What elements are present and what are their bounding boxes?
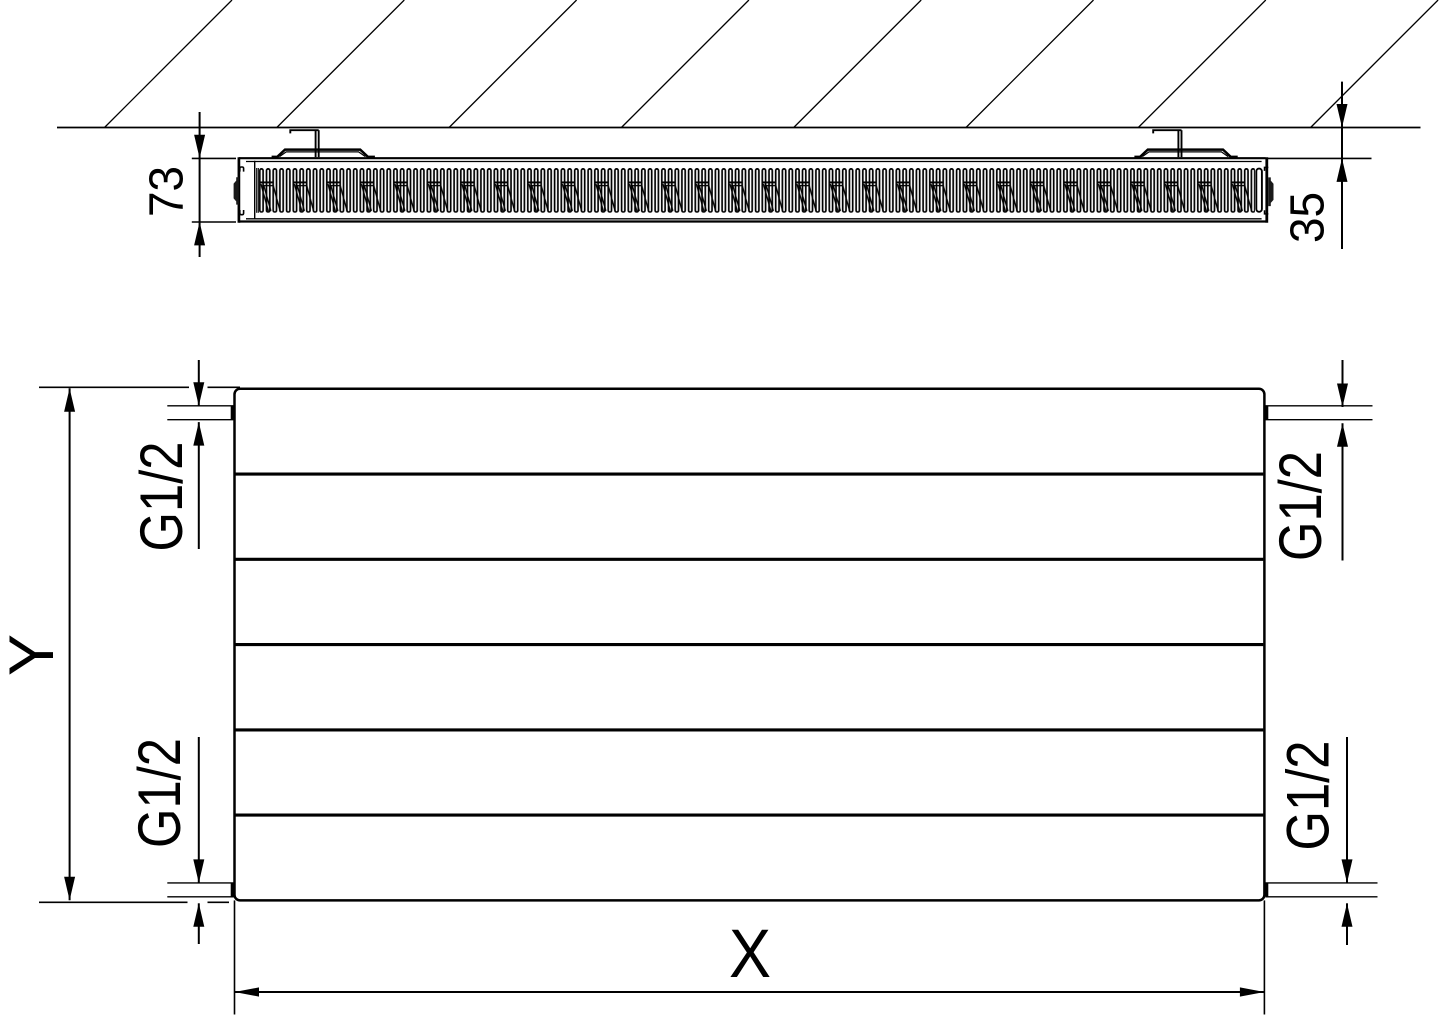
svg-text:G1/2: G1/2 (1275, 741, 1342, 851)
svg-text:73: 73 (141, 166, 194, 217)
svg-text:X: X (729, 915, 771, 992)
svg-text:G1/2: G1/2 (128, 442, 195, 552)
svg-text:35: 35 (1282, 192, 1335, 243)
svg-text:G1/2: G1/2 (1267, 451, 1334, 561)
svg-text:Y: Y (0, 634, 67, 676)
svg-text:G1/2: G1/2 (126, 738, 193, 848)
